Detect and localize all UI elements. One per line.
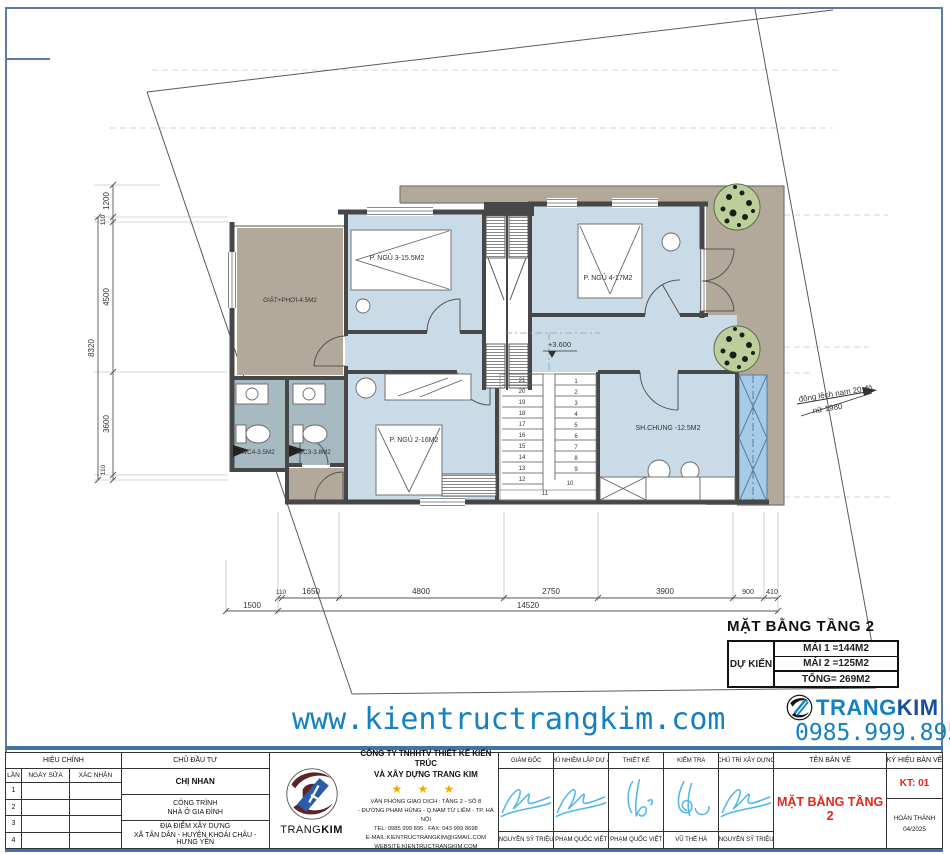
trangkim-logo-icon <box>786 694 813 721</box>
website-watermark: www.kientructrangkim.com <box>292 702 725 737</box>
room-label-bed4: P. NGỦ 4-17M2 <box>584 273 633 282</box>
company-section: TRANGKIM CÔNG TY TNHHTV THIẾT KẾ KIẾN TR… <box>270 753 500 848</box>
area-row-mai1: MÁI 1 =144M2 <box>775 642 897 657</box>
drawing-code-section: KÝ HIỆU BẢN VẼ KT: 01 HOÀN THÀNH 04/2025 <box>887 753 942 848</box>
svg-text:4800: 4800 <box>412 587 430 596</box>
svg-text:17: 17 <box>519 422 526 428</box>
revision-cell <box>70 800 121 816</box>
revision-cell <box>22 783 70 799</box>
plan-title: MẶT BẰNG TẦNG 2 <box>727 618 875 635</box>
svg-text:đông lệch nam 20 độ: đông lệch nam 20 độ <box>798 383 874 404</box>
svg-text:19: 19 <box>519 400 526 406</box>
signature-col-director: GIÁM ĐỐC NGUYỄN SỸ TRIỆU <box>499 753 554 848</box>
svg-text:15: 15 <box>519 444 526 450</box>
svg-text:6: 6 <box>574 434 578 440</box>
svg-text:8: 8 <box>574 456 578 462</box>
revision-cell <box>70 783 121 799</box>
revision-cell <box>22 833 70 849</box>
revision-row-number: 3 <box>6 816 22 832</box>
signature-name: NGUYỄN SỸ TRIỆU <box>499 831 553 848</box>
investor-name: CHỊ NHAN <box>122 769 269 795</box>
drawing-code-label: KÝ HIỆU BẢN VẼ <box>887 753 942 769</box>
revision-table: HIỆU CHỈNH LẦN NGÀY SỬA XÁC NHẬN 1 2 3 4 <box>6 753 122 848</box>
revision-title: HIỆU CHỈNH <box>6 753 121 769</box>
signature-role: CHỦ TRÌ XÂY DỰNG <box>719 753 773 769</box>
project-label: CÔNG TRÌNH <box>173 800 217 807</box>
svg-text:11: 11 <box>542 491 549 497</box>
tree-top <box>714 184 760 230</box>
room-label-living: SH.CHUNG -12.5M2 <box>636 425 701 432</box>
signature-col-construction-lead: CHỦ TRÌ XÂY DỰNG NGUYỄN SỸ TRIỆU <box>719 753 774 848</box>
location-value: XÃ TÂN DÂN - HUYỆN KHOÁI CHÂU - HƯNG YÊN <box>124 832 267 846</box>
room-label-bed3: P. NGỦ 3-15.5M2 <box>370 253 425 262</box>
revision-col-lan: LẦN <box>6 769 22 782</box>
signature-mark <box>499 769 553 831</box>
svg-text:410: 410 <box>766 589 778 596</box>
svg-text:20: 20 <box>519 389 526 395</box>
wall-corner-block <box>484 202 534 216</box>
room-label-wc3: WC3-3.8M2 <box>297 449 331 456</box>
svg-text:18: 18 <box>519 411 526 417</box>
title-block: HIỆU CHỈNH LẦN NGÀY SỬA XÁC NHẬN 1 2 3 4 <box>5 752 943 849</box>
svg-text:21: 21 <box>519 378 526 384</box>
signature-mark <box>719 769 773 831</box>
floor-plan-drawing: 21 20 19 18 17 16 15 14 13 12 1 2 3 4 5 … <box>0 0 950 700</box>
signature-role: KIỂM TRA <box>664 753 718 769</box>
dimension-chain-bottom: 110 1650 4800 2750 3900 900 410 1500 145… <box>223 512 781 614</box>
company-address-1: VĂN PHÒNG GIAO DỊCH : TẦNG 2 - SỐ 8 <box>371 798 482 807</box>
svg-text:12: 12 <box>519 477 526 483</box>
revision-row: 1 <box>6 783 121 800</box>
svg-text:9: 9 <box>574 467 578 473</box>
revision-cell <box>22 800 70 816</box>
signature-col-checker: KIỂM TRA VŨ THẾ HÀ <box>664 753 719 848</box>
company-website: WEBSITE:KIENTRUCTRANGKIM.COM <box>374 843 477 852</box>
drawing-name-value: MẶT BẰNG TẦNG 2 <box>774 769 886 848</box>
signature-name: PHẠM QUỐC VIỆT <box>554 831 608 848</box>
signature-name: PHẠM QUỐC VIỆT <box>609 831 663 848</box>
area-row-total: TỔNG= 269M2 <box>775 672 897 686</box>
svg-text:2750: 2750 <box>542 587 560 596</box>
revision-cell <box>70 833 121 849</box>
signature-col-designer: THIẾT KẾ PHẠM QUỐC VIỆT <box>609 753 664 848</box>
phone-number: 0985.999.895 <box>795 720 950 746</box>
revision-row-number: 1 <box>6 783 22 799</box>
svg-text:4: 4 <box>574 412 578 418</box>
revision-col-ngay: NGÀY SỬA <box>22 769 70 782</box>
svg-text:8320: 8320 <box>87 339 96 357</box>
svg-text:900: 900 <box>742 589 754 596</box>
area-table-label: DỰ KIẾN <box>729 642 775 686</box>
stars-rating: ★ ★ ★ <box>391 782 460 796</box>
dimension-chain-left: 8320 1200 110 4500 3600 110 <box>87 182 228 483</box>
svg-text:7: 7 <box>574 445 578 451</box>
revision-row-number: 4 <box>6 833 22 849</box>
svg-text:+3.600: +3.600 <box>548 340 571 349</box>
svg-text:3600: 3600 <box>102 415 111 433</box>
company-phone-fax: TEL: 0985 999 895 . FAX: 043 999 8698 <box>374 825 478 834</box>
drawing-date: 04/2025 <box>903 826 926 833</box>
company-address-2: - ĐƯỜNG PHẠM HÙNG - Q.NAM TỪ LIÊM - TP. … <box>357 807 496 825</box>
investor-section: CHỦ ĐẦU TƯ CHỊ NHAN CÔNG TRÌNH NHÀ Ở GIA… <box>122 753 270 848</box>
revision-cell <box>22 816 70 832</box>
brand-text-kim: KIM <box>897 695 939 720</box>
signature-mark <box>664 769 718 831</box>
brand-text-trang: TRANG <box>816 695 897 720</box>
brand-logo: TRANGKIM <box>786 694 939 721</box>
direction-note: đông lệch nam 20 độ nữ 1980 <box>797 383 877 416</box>
svg-text:2: 2 <box>574 390 578 396</box>
svg-text:4500: 4500 <box>102 288 111 306</box>
tree-bottom <box>714 326 760 372</box>
drawing-status: HOÀN THÀNH <box>894 815 936 822</box>
svg-text:16: 16 <box>519 433 526 439</box>
svg-text:110: 110 <box>276 589 287 596</box>
company-logo: TRANGKIM <box>270 753 354 848</box>
signature-role: GIÁM ĐỐC <box>499 753 553 769</box>
signature-role: THIẾT KẾ <box>609 753 663 769</box>
svg-text:1: 1 <box>574 379 578 385</box>
svg-text:nữ 1980: nữ 1980 <box>812 402 843 416</box>
room-label-bed2: P. NGỦ 2-16M2 <box>390 435 439 444</box>
company-email: E-MAIL:KIENTRUCTRANGKIM@GMAIL.COM <box>366 834 486 843</box>
svg-text:1200: 1200 <box>102 192 111 210</box>
company-name-line1: CÔNG TY TNHHTV THIẾT KẾ KIẾN TRÚC <box>357 749 496 770</box>
svg-text:1650: 1650 <box>302 587 320 596</box>
area-table: DỰ KIẾN MÁI 1 =144M2 MÁI 2 =125M2 TỔNG= … <box>727 640 899 688</box>
svg-text:14: 14 <box>519 455 526 461</box>
drawing-name-section: TÊN BẢN VẼ MẶT BẰNG TẦNG 2 <box>774 753 887 848</box>
svg-text:14520: 14520 <box>517 601 540 610</box>
logo-text-kim: KIM <box>321 824 343 836</box>
svg-text:13: 13 <box>519 466 526 472</box>
drawing-code-value: KT: 01 <box>887 769 942 799</box>
svg-text:110: 110 <box>100 214 107 225</box>
signature-mark <box>609 769 663 831</box>
revision-row: 2 <box>6 800 121 817</box>
project-name: NHÀ Ở GIA ĐÌNH <box>167 809 222 816</box>
signature-role: CHỦ NHIỆM LẬP DỰ ÁN <box>554 753 608 769</box>
signature-name: NGUYỄN SỸ TRIỆU <box>719 831 773 848</box>
signature-mark <box>554 769 608 831</box>
revision-row: 3 <box>6 816 121 833</box>
svg-text:1500: 1500 <box>243 601 261 610</box>
svg-text:110: 110 <box>100 464 107 475</box>
revision-cell <box>70 816 121 832</box>
room-label-laundry: GIẶT+PHƠI-4.5M2 <box>263 295 317 304</box>
area-row-mai2: MÁI 2 =125M2 <box>775 657 897 673</box>
drawing-sheet: 21 20 19 18 17 16 15 14 13 12 1 2 3 4 5 … <box>0 0 950 854</box>
revision-row-number: 2 <box>6 800 22 816</box>
revision-col-xacnhan: XÁC NHẬN <box>70 769 121 782</box>
revision-row: 4 <box>6 833 121 849</box>
company-name-line2: VÀ XÂY DỰNG TRANG KIM <box>374 770 478 780</box>
drawing-name-label: TÊN BẢN VẼ <box>774 753 886 769</box>
location-label: ĐỊA ĐIỂM XÂY DỰNG <box>160 823 230 830</box>
logo-text-trang: TRANG <box>280 824 321 836</box>
svg-text:10: 10 <box>567 481 574 487</box>
signature-name: VŨ THẾ HÀ <box>664 831 718 848</box>
svg-text:3: 3 <box>574 401 578 407</box>
svg-text:5: 5 <box>574 423 578 429</box>
svg-text:3900: 3900 <box>656 587 674 596</box>
room-label-wc4: WC4-3.5M2 <box>241 449 275 456</box>
investor-title: CHỦ ĐẦU TƯ <box>122 753 269 769</box>
trangkim-logo-large-icon <box>284 766 340 822</box>
signature-col-project-manager: CHỦ NHIỆM LẬP DỰ ÁN PHẠM QUỐC VIỆT <box>554 753 609 848</box>
